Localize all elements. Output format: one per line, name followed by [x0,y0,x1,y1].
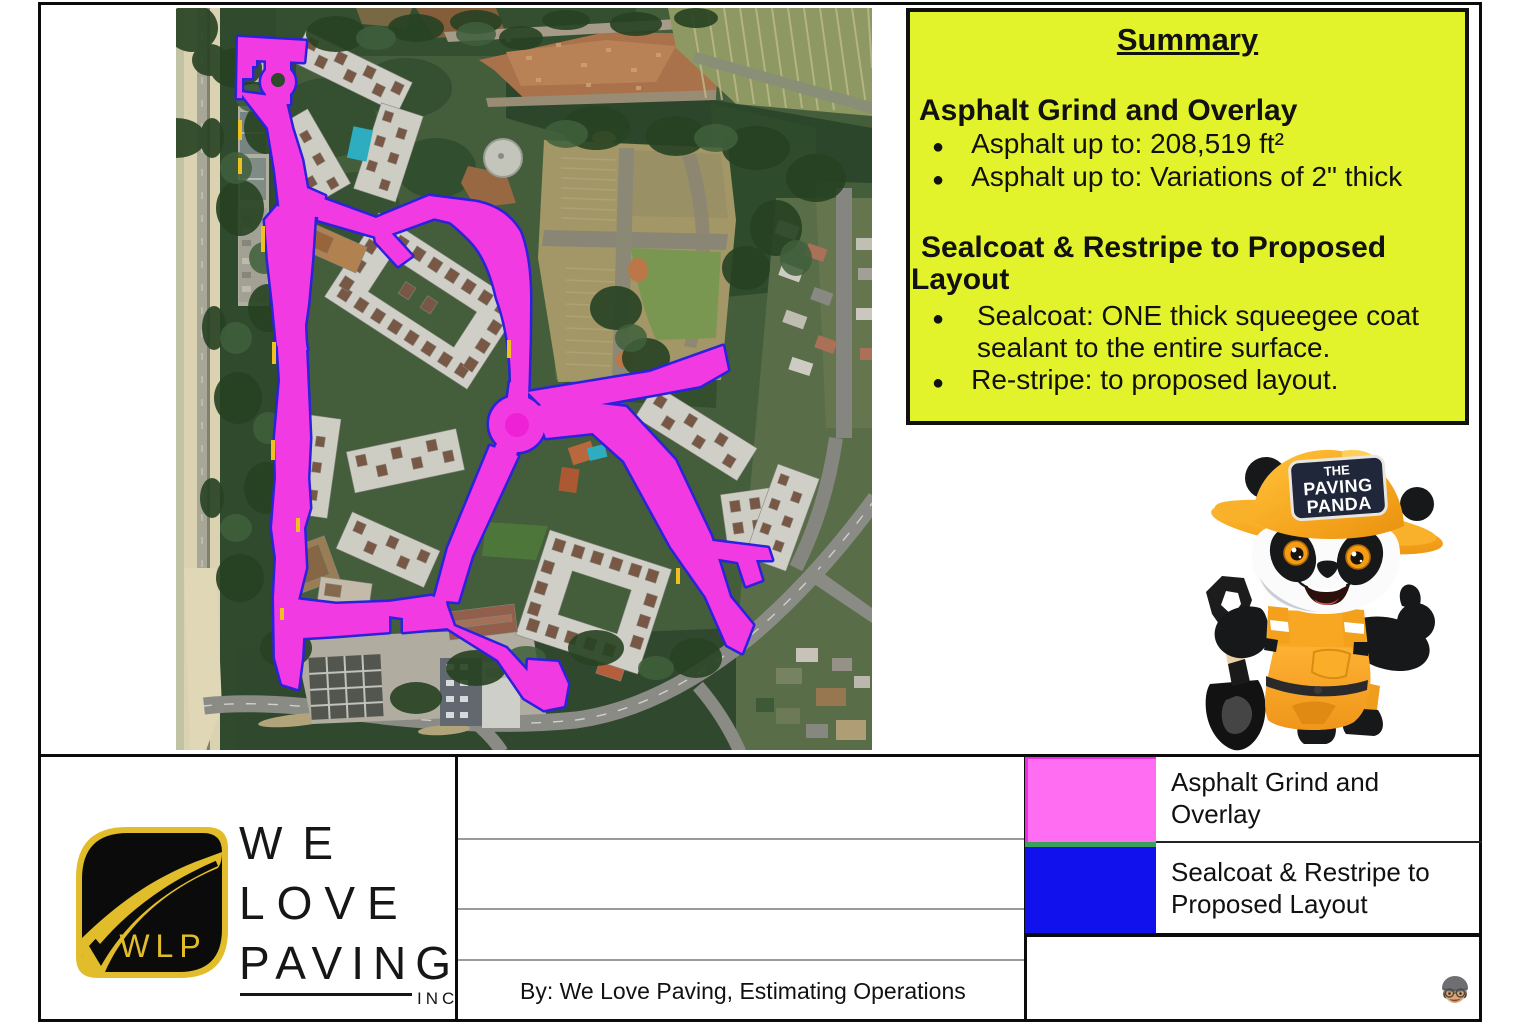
svg-text:WLP: WLP [119,928,206,964]
